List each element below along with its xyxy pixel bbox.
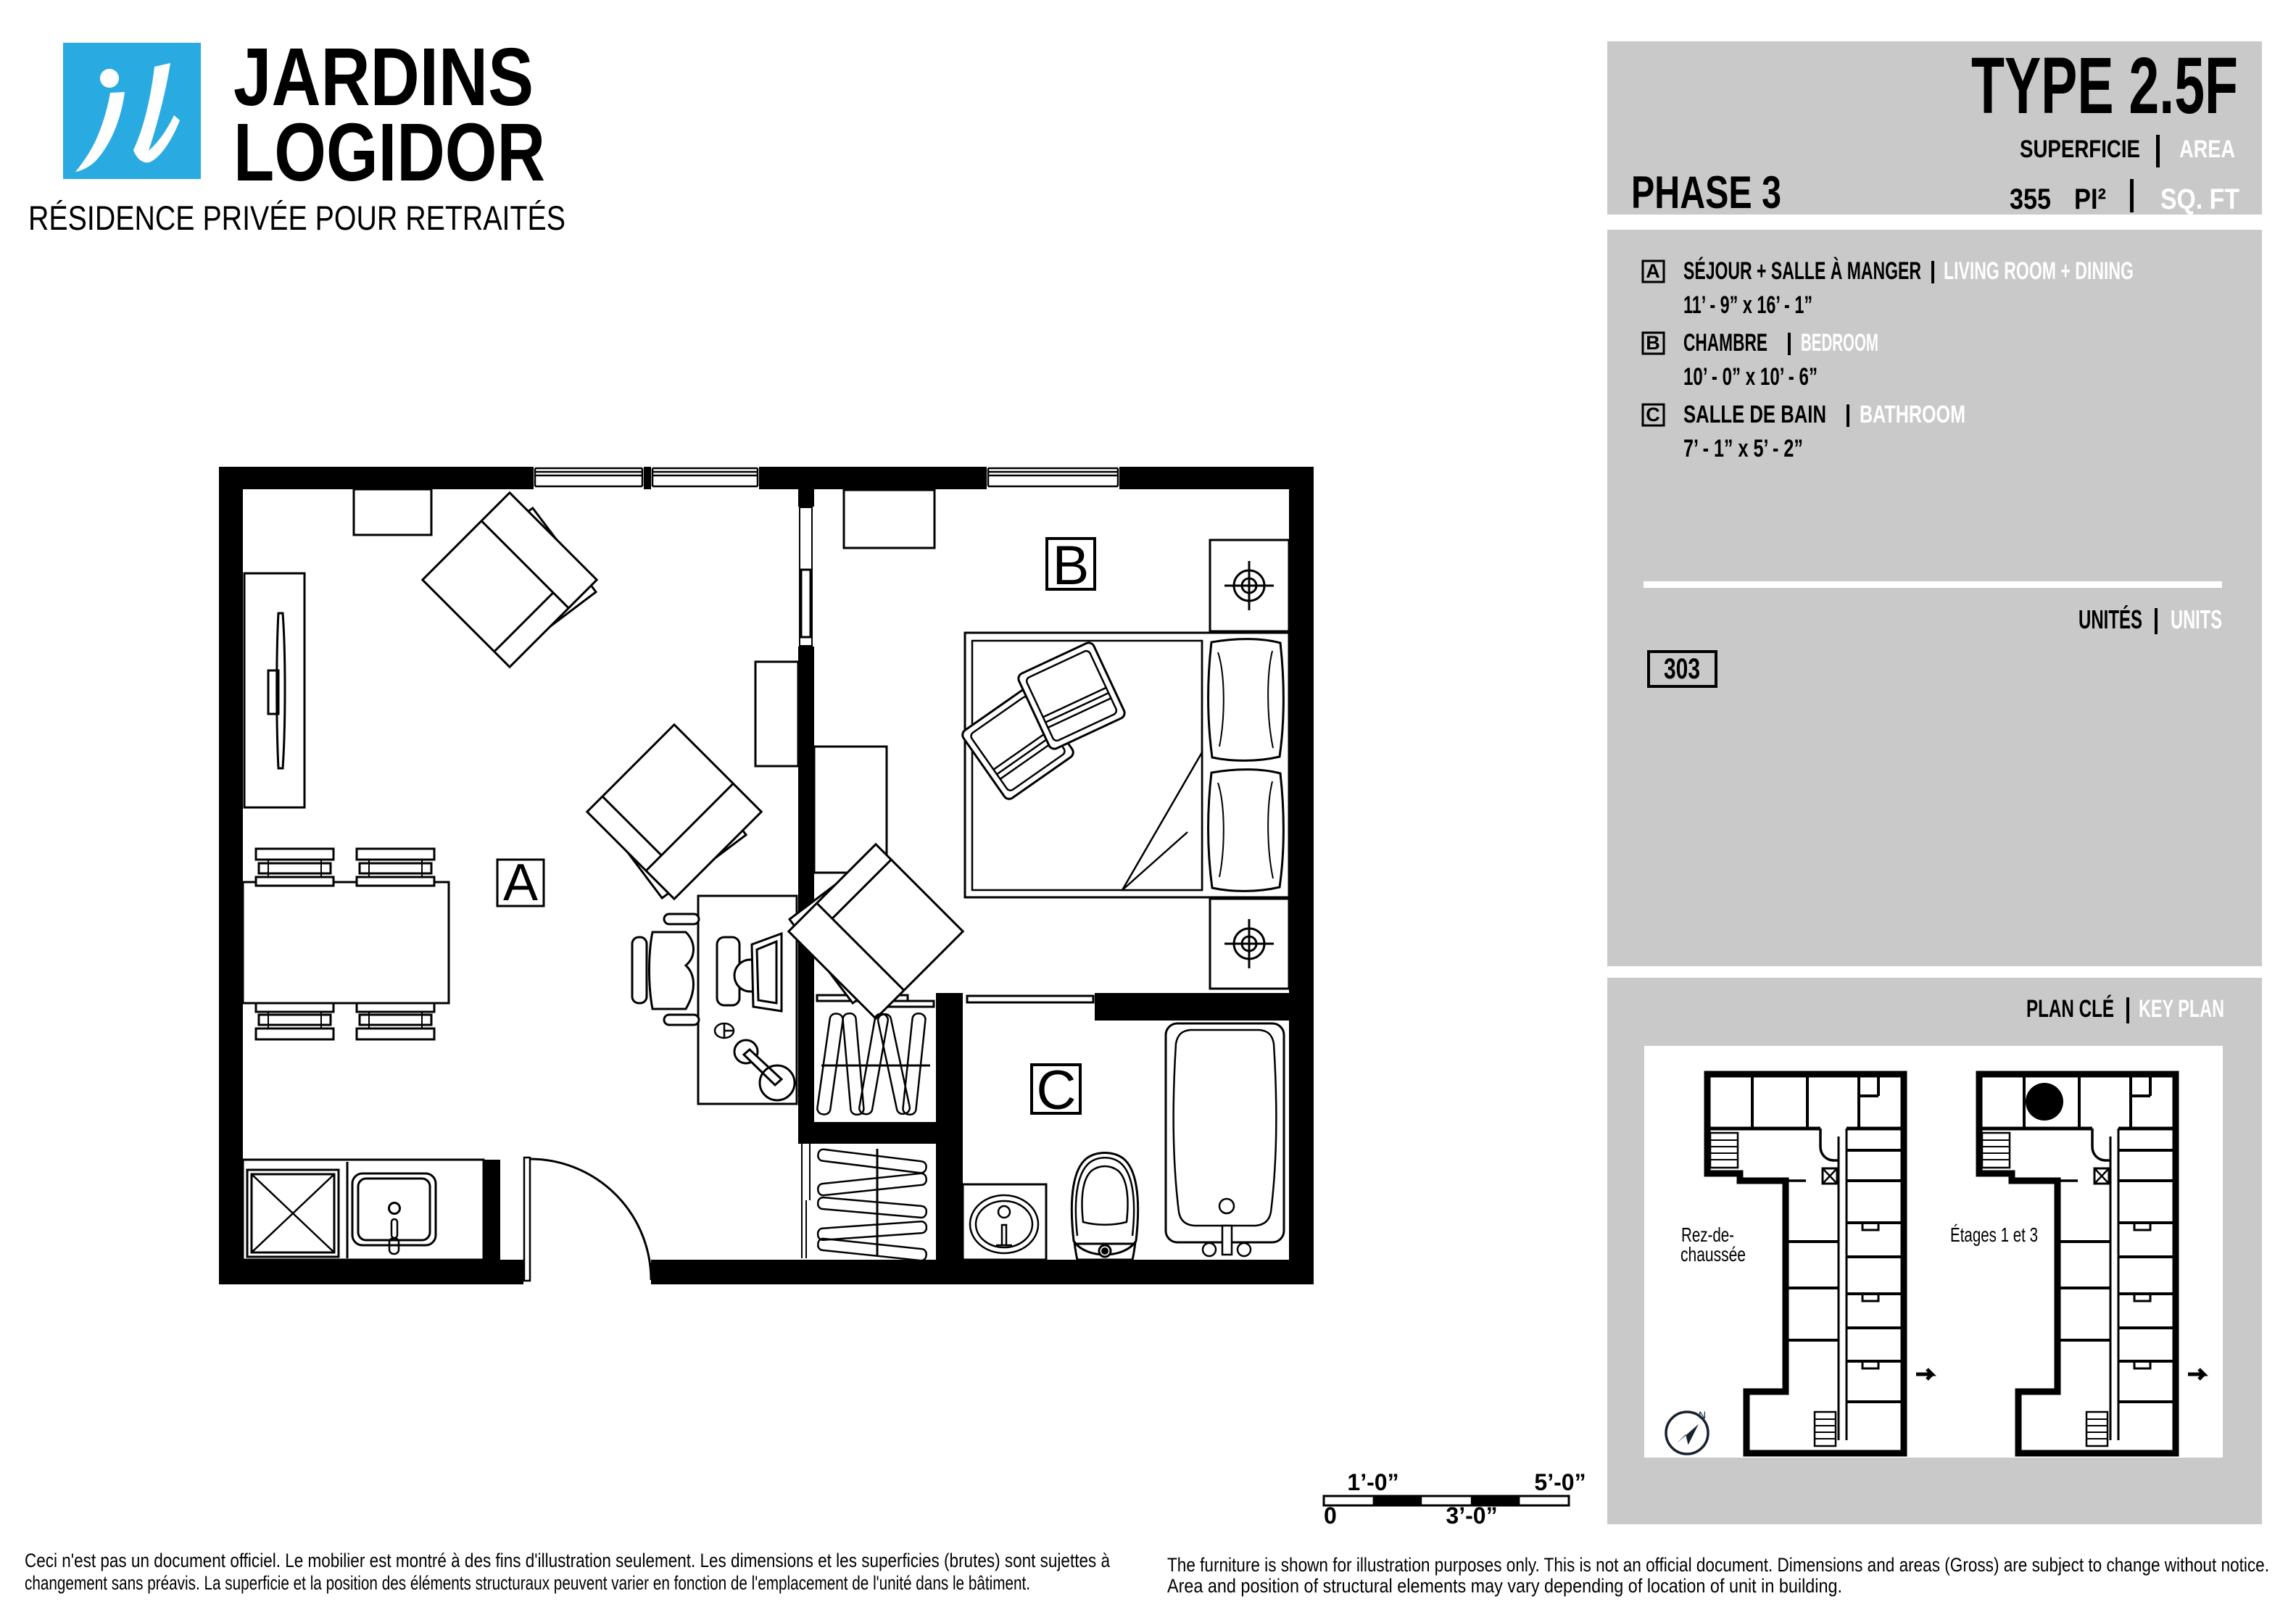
- svg-text:N: N: [1699, 1409, 1706, 1421]
- svg-text:A: A: [503, 854, 538, 912]
- svg-text:UNITÉS: UNITÉS: [2079, 604, 2142, 634]
- svg-text:chaussée: chaussée: [1680, 1243, 1746, 1266]
- svg-text:3’-0”: 3’-0”: [1446, 1503, 1497, 1529]
- svg-text:LOGIDOR: LOGIDOR: [233, 107, 545, 198]
- svg-text:CHAMBRE: CHAMBRE: [1683, 329, 1767, 357]
- svg-text:SÉJOUR + SALLE À MANGER: SÉJOUR + SALLE À MANGER: [1683, 257, 1921, 285]
- svg-text:LIVING ROOM + DINING: LIVING ROOM + DINING: [1944, 257, 2134, 285]
- svg-text:RÉSIDENCE PRIVÉE POUR RETRAITÉ: RÉSIDENCE PRIVÉE POUR RETRAITÉS: [28, 199, 565, 237]
- svg-text:10’ - 0” x 10’ - 6”: 10’ - 0” x 10’ - 6”: [1683, 363, 1818, 391]
- svg-text:PI²: PI²: [2074, 183, 2106, 215]
- svg-text:C: C: [1037, 1060, 1077, 1121]
- svg-text:0: 0: [1324, 1503, 1337, 1529]
- svg-text:303: 303: [1664, 653, 1700, 685]
- svg-text:PHASE 3: PHASE 3: [1631, 167, 1781, 218]
- svg-text:changement sans préavis. La su: changement sans préavis. La superficie e…: [25, 1572, 1030, 1594]
- svg-text:11’ - 9” x 16’ - 1”: 11’ - 9” x 16’ - 1”: [1683, 291, 1812, 319]
- svg-text:SQ. FT: SQ. FT: [2160, 183, 2239, 215]
- svg-text:5’-0”: 5’-0”: [1534, 1469, 1586, 1495]
- svg-text:B: B: [1646, 332, 1660, 354]
- svg-text:B: B: [1053, 535, 1090, 597]
- svg-text:BEDROOM: BEDROOM: [1801, 329, 1878, 357]
- svg-text:UNITS: UNITS: [2171, 604, 2222, 634]
- svg-text:SUPERFICIE: SUPERFICIE: [2020, 136, 2140, 163]
- svg-text:SALLE DE BAIN: SALLE DE BAIN: [1683, 401, 1826, 428]
- svg-text:BATHROOM: BATHROOM: [1860, 401, 1965, 428]
- svg-text:355: 355: [2010, 183, 2051, 215]
- svg-text:PLAN CLÉ: PLAN CLÉ: [2026, 995, 2114, 1023]
- svg-text:The furniture is shown for ill: The furniture is shown for illustration …: [1167, 1554, 2269, 1576]
- svg-text:Area and position of structura: Area and position of structural elements…: [1167, 1575, 1842, 1597]
- svg-text:C: C: [1646, 404, 1660, 425]
- svg-text:Ceci n'est pas un document off: Ceci n'est pas un document officiel. Le …: [25, 1550, 1111, 1571]
- svg-text:A: A: [1646, 260, 1660, 282]
- svg-text:Étages 1 et 3: Étages 1 et 3: [1950, 1223, 2038, 1246]
- svg-text:7’ - 1” x 5’ - 2”: 7’ - 1” x 5’ - 2”: [1683, 435, 1803, 462]
- svg-text:TYPE 2.5F: TYPE 2.5F: [1971, 41, 2238, 130]
- svg-text:AREA: AREA: [2179, 136, 2235, 163]
- svg-text:KEY PLAN: KEY PLAN: [2139, 995, 2224, 1023]
- svg-text:1’-0”: 1’-0”: [1347, 1469, 1398, 1495]
